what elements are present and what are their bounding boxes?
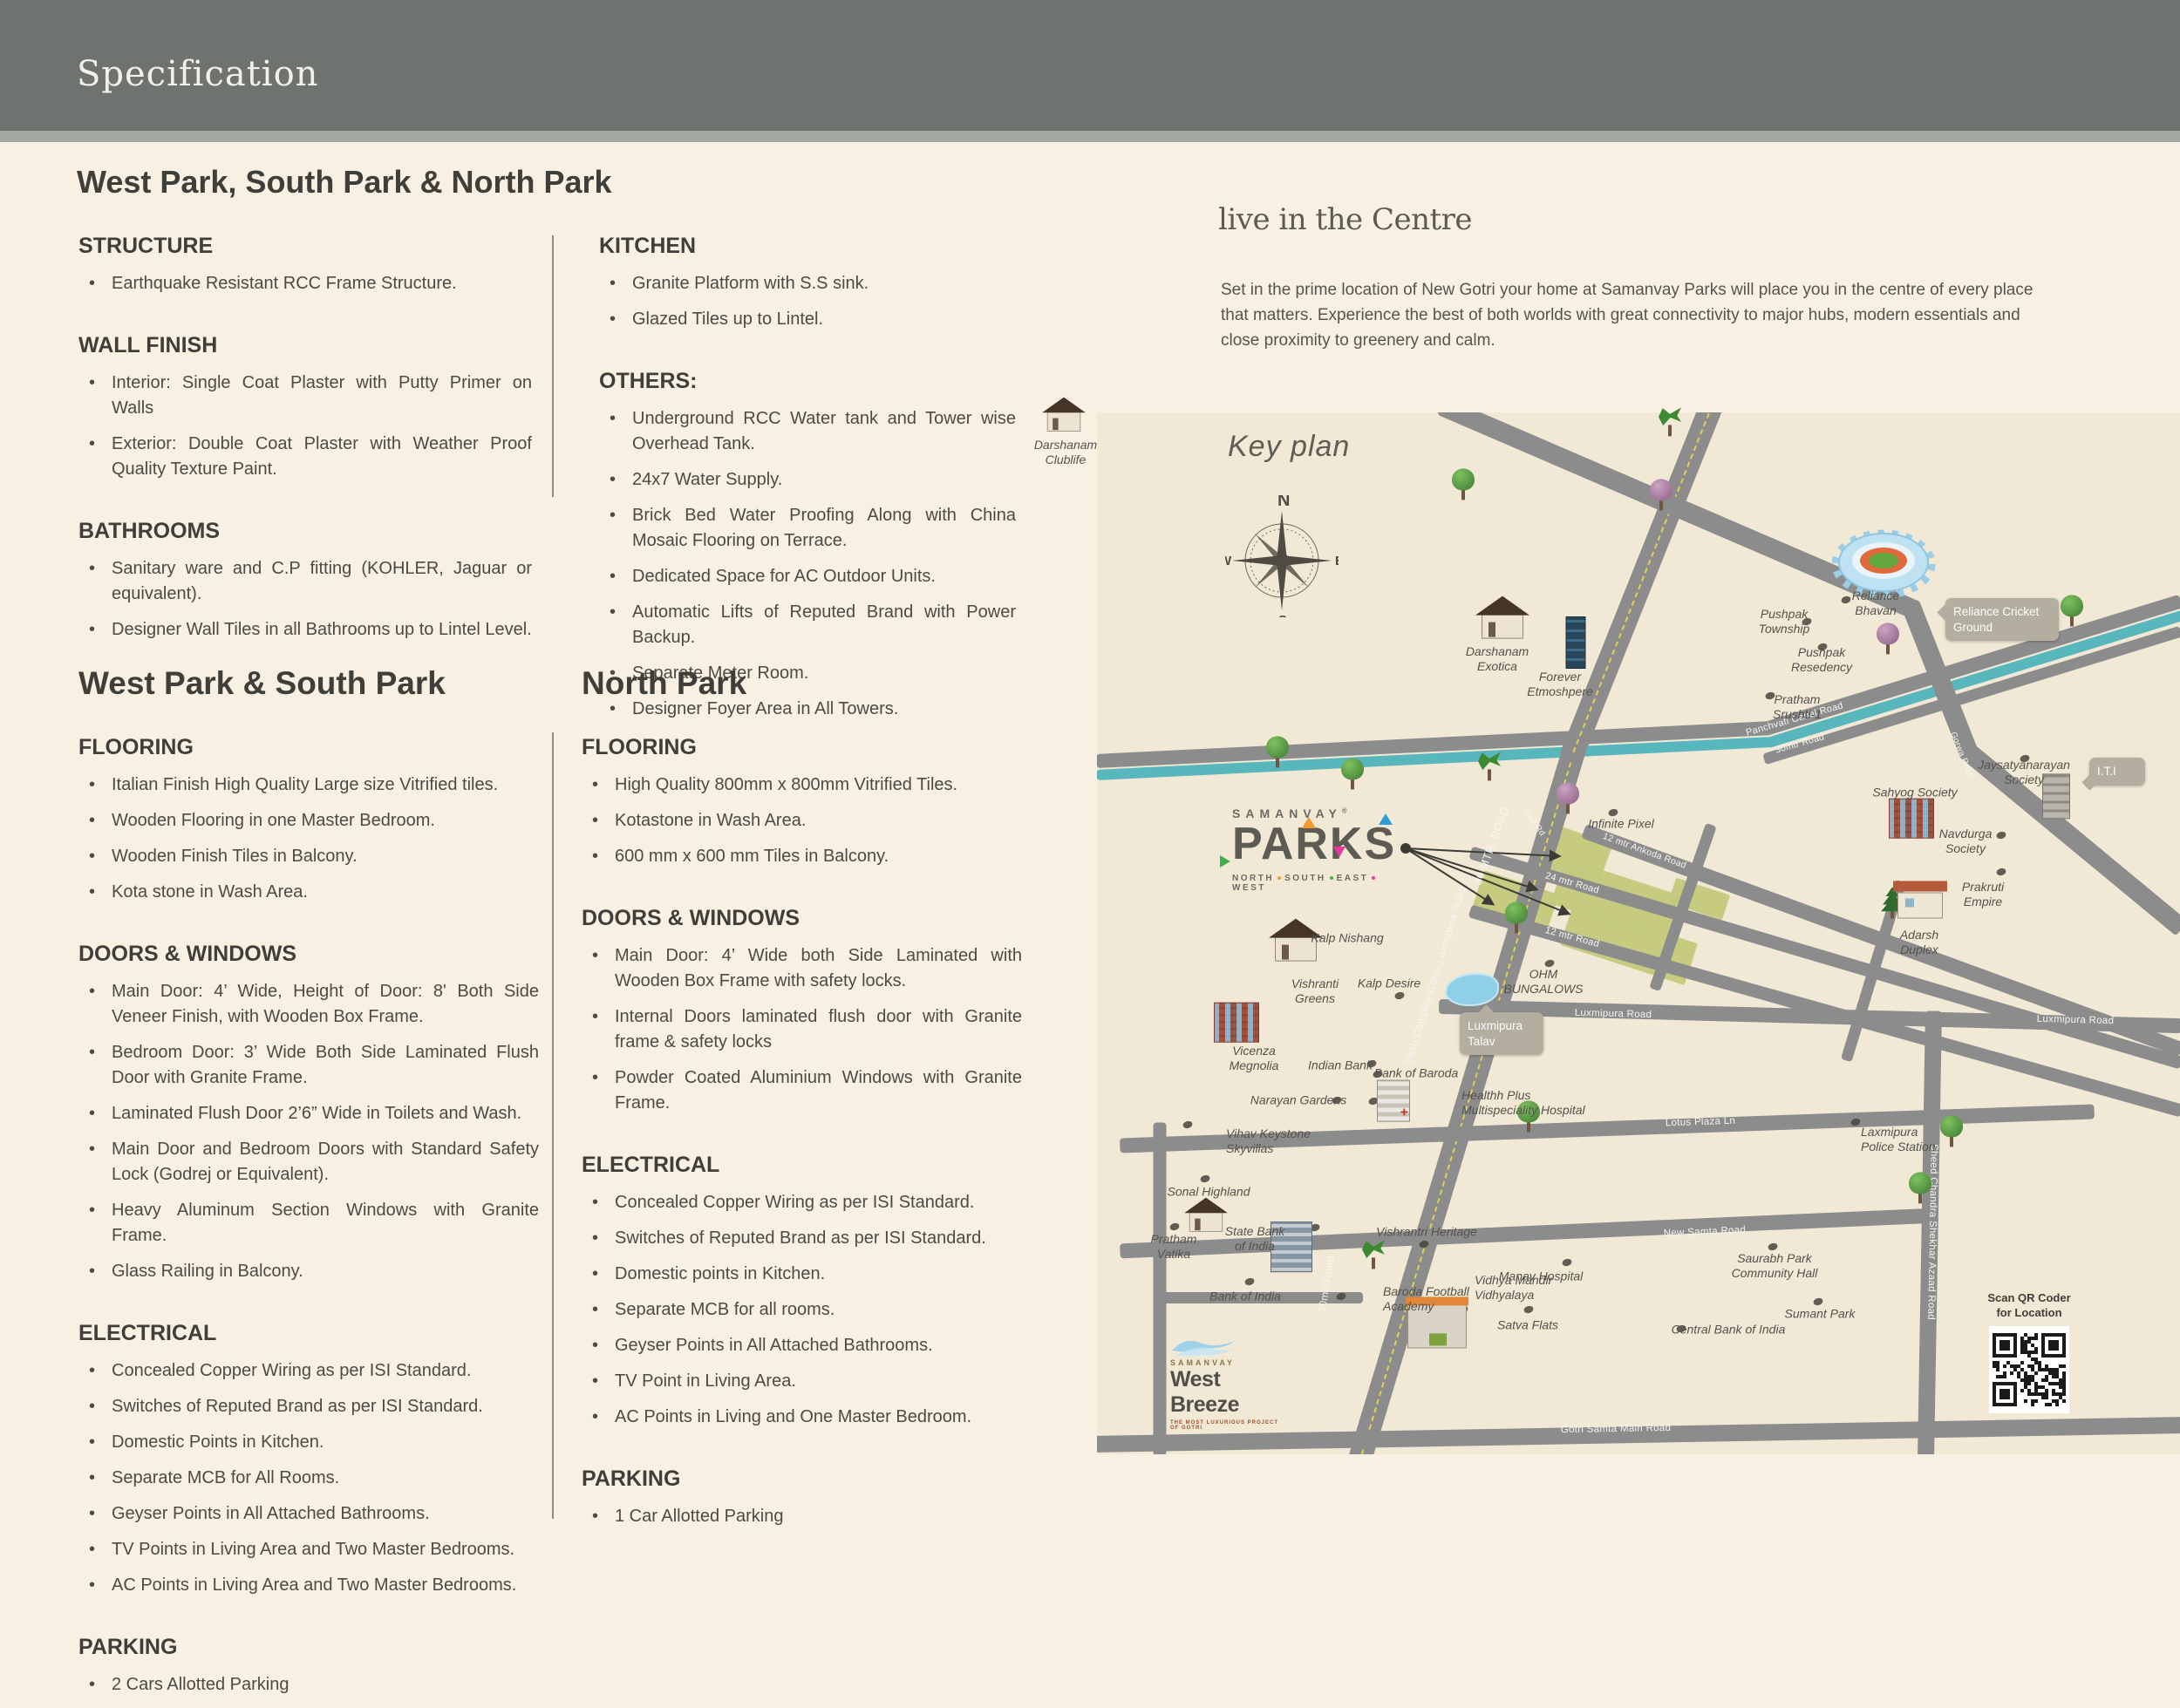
north-park-title: North Park (582, 665, 1022, 702)
road-label: Luxmipura Road (1575, 1008, 1652, 1020)
place-label: Prakruti Empire (1962, 880, 2004, 909)
green-tree-icon (1505, 902, 1528, 933)
spec-item: Internal Doors laminated flush door with… (582, 1004, 1022, 1055)
west-breeze-brand: SAMANVAY (1170, 1358, 1284, 1367)
spec-item: Concealed Copper Wiring as per ISI Stand… (582, 1190, 1022, 1215)
poi-dot (1562, 1258, 1573, 1268)
spec-item: 24x7 Water Supply. (599, 467, 1016, 493)
place-label: Bank of India (1209, 1290, 1281, 1304)
flats-building-icon (1214, 1003, 1259, 1043)
spec-list: High Quality 800mm x 800mm Vitrified Til… (582, 772, 1022, 869)
spec-item: Granite Platform with S.S sink. (599, 271, 1016, 296)
place-label: Pratham Srushti-1 (1773, 692, 1822, 722)
spec-section-heading: WALL FINISH (78, 333, 532, 358)
poi-dot (1336, 1292, 1347, 1302)
poi-dot (1768, 1242, 1779, 1252)
spec-item: 1 Car Allotted Parking (582, 1504, 1022, 1529)
place-label: Sahyog Society (1872, 786, 1957, 800)
place-label: Vishranti Greens (1291, 976, 1339, 1006)
spec-item: Sanitary ware and C.P fitting (KOHLER, J… (78, 556, 532, 607)
registered-mark: ® (1342, 806, 1352, 814)
spec-section-heading: BATHROOMS (78, 519, 532, 544)
duplex-building-icon (1897, 893, 1943, 919)
poi-dot (1813, 1297, 1824, 1307)
house-building-icon (1189, 1212, 1223, 1231)
logo-triangle-orange (1302, 817, 1316, 828)
green-tree-icon (1341, 758, 1364, 789)
flats-building-icon (1889, 799, 1934, 839)
spec-item: Main Door: 4’ Wide both Side Laminated w… (582, 943, 1022, 994)
samanvay-parks-logo: SAMANVAY® PARKS NORTHSOUTHEASTWEST (1232, 806, 1407, 893)
spec-item: Kota stone in Wash Area. (78, 880, 539, 905)
logo-triangle-blue (1379, 813, 1393, 825)
palm-tree-icon (1362, 1237, 1385, 1269)
spec-item: Switches of Reputed Brand as per ISI Sta… (582, 1226, 1022, 1251)
spec-item: Main Door and Bedroom Doors with Standar… (78, 1137, 539, 1187)
spec-section-heading: ELECTRICAL (78, 1321, 539, 1346)
header-band-strip (0, 131, 2180, 142)
west-south-park-title: West Park & South Park (78, 665, 539, 702)
header-band (0, 0, 2180, 131)
road-label: 30mtr Road (1316, 1255, 1337, 1313)
road-label: Sheed Chandra Shekhar Azaad Road (1925, 1144, 1939, 1320)
spec-item: Kotastone in Wash Area. (582, 808, 1022, 834)
svg-text:N: N (1277, 495, 1290, 510)
place-label: Vihav Keystone Skyvillas (1226, 1126, 1311, 1156)
spec-section-heading: DOORS & WINDOWS (582, 906, 1022, 931)
road-label: Gorwa Road (1948, 731, 1975, 779)
place-label: Vishrantri Heritage (1376, 1225, 1477, 1240)
spec-list: Concealed Copper Wiring as per ISI Stand… (78, 1358, 539, 1598)
spec-item: Heavy Aluminum Section Windows with Gran… (78, 1198, 539, 1249)
callout-line: Luxmipura (1468, 1018, 1536, 1034)
tagline-dot (1277, 876, 1281, 880)
place-label: Darshanam Clublife (1034, 438, 1097, 467)
west-breeze-logo: SAMANVAY West Breeze THE MOST LUXURIOUS … (1170, 1335, 1284, 1431)
green-tree-icon (1909, 1172, 1931, 1203)
road-label: 24 mtr Road (1544, 870, 1601, 895)
logo-triangle-green (1220, 855, 1230, 868)
spec-item: AC Points in Living and One Master Bedro… (582, 1405, 1022, 1430)
place-label: Saurabh Park Community Hall (1732, 1251, 1818, 1281)
place-label: Bank of Baroda (1374, 1066, 1459, 1081)
road-label: Yash Complex Gotri- Laxmipura Road (1402, 885, 1468, 1065)
road-label: Luxmipura Road (2037, 1014, 2115, 1026)
spec-section-heading: PARKING (582, 1466, 1022, 1492)
spec-item: Exterior: Double Coat Plaster with Weath… (78, 432, 532, 482)
spec-item: Switches of Reputed Brand as per ISI Sta… (78, 1394, 539, 1419)
tree-canopy (1659, 405, 1681, 426)
spec-item: Separate MCB for all rooms. (582, 1297, 1022, 1323)
west-breeze-tagline: THE MOST LUXURIOUS PROJECT OF GOTRI (1170, 1420, 1284, 1431)
poi-dot (1394, 991, 1406, 1001)
spec-item: 2 Cars Allotted Parking (78, 1672, 539, 1698)
logo-triangle-pink (1333, 847, 1345, 857)
place-label: Forever Etmoshpere (1527, 670, 1592, 699)
spec-item: 600 mm x 600 mm Tiles in Balcony. (582, 844, 1022, 869)
spec-section-heading: FLOORING (78, 735, 539, 760)
callout-line: Talav (1468, 1034, 1536, 1050)
spec-section-heading: PARKING (78, 1635, 539, 1660)
spec-list: Interior: Single Coat Plaster with Putty… (78, 371, 532, 482)
place-label: Navdurga Society (1939, 827, 1993, 856)
callout-tail (2081, 774, 2097, 790)
qr-code (1989, 1326, 2069, 1413)
palm-tree-icon (1478, 749, 1501, 780)
logo-tagline-word: EAST (1337, 874, 1369, 883)
spec-item: Dedicated Space for AC Outdoor Units. (599, 564, 1016, 589)
road-label: 30 MTR. ROAD (1471, 805, 1511, 887)
tree-canopy (1557, 782, 1579, 804)
road-label: Lotus Plaza Ln (1666, 1116, 1736, 1129)
tree-canopy (1877, 623, 1899, 644)
hospital-building-icon (1377, 1080, 1410, 1122)
spec-item: Designer Wall Tiles in all Bathrooms up … (78, 617, 532, 643)
spec-item: Wooden Finish Tiles in Balcony. (78, 844, 539, 869)
spec-item: Earthquake Resistant RCC Frame Structure… (78, 271, 532, 296)
column-divider-bottom (552, 732, 554, 1519)
place-label: Sumant Park (1785, 1307, 1856, 1322)
tower-building-icon (1566, 616, 1586, 669)
spec-item: Domestic points in Kitchen. (582, 1262, 1022, 1287)
logo-name: PARKS (1232, 820, 1407, 868)
green-tree-icon (1452, 468, 1475, 500)
compass-icon: N E S W (1225, 495, 1339, 617)
north-park-sections: FLOORINGHigh Quality 800mm x 800mm Vitri… (582, 735, 1022, 1529)
keyplan-title: Key plan (1228, 430, 1350, 464)
callout-tail (1937, 604, 1952, 620)
callout-line: Ground (1953, 620, 2051, 636)
column-divider-top (552, 235, 554, 497)
spec-item: Glass Railing in Balcony. (78, 1259, 539, 1284)
tree-canopy (1909, 1172, 1931, 1194)
spec-section-heading: FLOORING (582, 735, 1022, 760)
spec-list: Granite Platform with S.S sink.Glazed Ti… (599, 271, 1016, 332)
poi-dot (1850, 1118, 1862, 1127)
spec-item: Geyser Points in All Attached Bathrooms. (582, 1333, 1022, 1358)
purple-tree-icon (1557, 782, 1579, 813)
svg-text:E: E (1335, 554, 1339, 568)
poi-dot (1996, 831, 2007, 840)
place-label: Central Bank of India (1672, 1323, 1786, 1337)
road-label: 30mtr Road (1775, 732, 1826, 755)
spec-item: Concealed Copper Wiring as per ISI Stand… (78, 1358, 539, 1384)
tree-canopy (1478, 749, 1501, 771)
house-building-icon (1482, 615, 1523, 639)
west-breeze-wave-icon (1170, 1335, 1238, 1359)
tagline-dot (1330, 876, 1333, 880)
logo-tagline: NORTHSOUTHEASTWEST (1232, 874, 1407, 893)
place-label: Sonal Highland (1168, 1185, 1250, 1200)
tree-canopy (1452, 468, 1475, 490)
spec-section-heading: DOORS & WINDOWS (78, 942, 539, 967)
road-label: New Samta Road (1664, 1225, 1747, 1239)
callout-line: I.T.I (2097, 764, 2137, 779)
spec-section-heading: OTHERS: (599, 369, 1016, 394)
spec-list: 2 Cars Allotted Parking (78, 1672, 539, 1698)
spec-section-heading: ELECTRICAL (582, 1153, 1022, 1178)
spec-item: Separate MCB for All Rooms. (78, 1466, 539, 1491)
poi-dot (1419, 1240, 1430, 1249)
tree-canopy (1362, 1237, 1385, 1259)
poi-dot (1996, 868, 2007, 877)
tree-canopy (1505, 902, 1528, 923)
place-label: Kalp Nishang (1311, 931, 1383, 946)
spec-section-heading: STRUCTURE (78, 234, 532, 259)
spec-list: Earthquake Resistant RCC Frame Structure… (78, 271, 532, 296)
map-features-layer: Key plan N E S W (1097, 412, 2180, 1454)
west-breeze-name: West Breeze (1170, 1367, 1284, 1418)
spec-item: High Quality 800mm x 800mm Vitrified Til… (582, 772, 1022, 798)
poi-dot (1841, 595, 1852, 605)
road-label: 12 mtr Ankoda Road (1601, 831, 1687, 871)
place-label: Kalp Desire (1358, 976, 1420, 991)
spec-item: Domestic Points in Kitchen. (78, 1430, 539, 1455)
place-label: Pushpak Resedency (1791, 645, 1852, 675)
combined-specs-title: West Park, South Park & North Park (77, 164, 612, 201)
spec-item: Geyser Points in All Attached Bathrooms. (78, 1501, 539, 1527)
tree-canopy (1266, 736, 1289, 758)
spec-list: Sanitary ware and C.P fitting (KOHLER, J… (78, 556, 532, 643)
combined-col-left: STRUCTUREEarthquake Resistant RCC Frame … (78, 234, 532, 653)
map-callout: Reliance CricketGround (1945, 598, 2059, 641)
place-label: Narayan Gardens (1250, 1093, 1347, 1108)
road-label: Club Rd (1521, 806, 1547, 838)
purple-tree-icon (1650, 479, 1672, 510)
callout-line: Reliance Cricket (1953, 604, 2051, 620)
svg-text:S: S (1278, 613, 1287, 617)
map-callout: I.T.I (2089, 758, 2145, 786)
keyplan-panel: Key plan N E S W (1097, 412, 2180, 1454)
tree-trunk (1668, 425, 1672, 436)
spec-item: Laminated Flush Door 2’6” Wide in Toilet… (78, 1101, 539, 1126)
place-label: State Bank of India (1225, 1224, 1285, 1254)
qr-caption: Scan QR Coder for Location (1986, 1291, 2073, 1321)
spec-item: TV Point in Living Area. (582, 1369, 1022, 1394)
spec-item: Glazed Tiles up to Lintel. (599, 307, 1016, 332)
poi-dot (1244, 1277, 1256, 1287)
tree-canopy (1341, 758, 1364, 779)
spec-item: AC Points in Living Area and Two Master … (78, 1573, 539, 1598)
place-label: Reliance Bhavan (1852, 589, 1899, 618)
tree-canopy (2061, 595, 2083, 616)
spec-item: Powder Coated Aluminium Windows with Gra… (582, 1065, 1022, 1116)
combined-col-right: KITCHENGranite Platform with S.S sink.Gl… (599, 234, 1016, 732)
intro-heading: live in the Centre (1218, 202, 1472, 237)
place-label: Laxmipura Police Station (1861, 1125, 1936, 1154)
svg-text:W: W (1225, 554, 1232, 568)
tree-canopy (1940, 1115, 1963, 1137)
spec-item: Italian Finish High Quality Large size V… (78, 772, 539, 798)
place-label: Infinite Pixel (1588, 817, 1653, 832)
place-label: OHM BUNGALOWS (1503, 967, 1583, 997)
place-label: Darshanam Exotica (1466, 644, 1529, 674)
place-label: Pratham Vatika (1151, 1232, 1197, 1262)
place-label: Satva Flats (1497, 1318, 1558, 1333)
spec-item: Interior: Single Coat Plaster with Putty… (78, 371, 532, 421)
spec-item: TV Points in Living Area and Two Master … (78, 1537, 539, 1562)
place-label: Baroda Football Academy (1383, 1284, 1469, 1314)
spec-item: Brick Bed Water Proofing Along with Chin… (599, 503, 1016, 554)
spec-item: Automatic Lifts of Reputed Brand with Po… (599, 600, 1016, 650)
tree-trunk (1372, 1257, 1375, 1269)
place-label: Healthh Plus Multispeciality Hospital (1461, 1088, 1585, 1118)
green-tree-icon (1266, 736, 1289, 767)
place-label: Pushpak Township (1759, 607, 1810, 636)
spec-list: Main Door: 4’ Wide both Side Laminated w… (582, 943, 1022, 1116)
green-tree-icon (1940, 1115, 1963, 1147)
west-south-park-sections: FLOORINGItalian Finish High Quality Larg… (78, 735, 539, 1698)
road-label: Gotri Samta Main Road (1561, 1423, 1672, 1435)
spec-item: Wooden Flooring in one Master Bedroom. (78, 808, 539, 834)
place-label: Adarsh Duplex (1900, 928, 1938, 957)
road-label: 12 mtr Road (1544, 925, 1601, 949)
tagline-dot (1372, 876, 1375, 880)
poi-dot (1200, 1174, 1211, 1184)
spec-item: Main Door: 4’ Wide, Height of Door: 8' B… (78, 979, 539, 1030)
spec-item: Underground RCC Water tank and Tower wis… (599, 406, 1016, 457)
poi-dot (1523, 1305, 1535, 1315)
green-tree-icon (2061, 595, 2083, 626)
tree-canopy (1650, 479, 1672, 500)
logo-tagline-word: WEST (1232, 883, 1266, 893)
poi-dot (1182, 1120, 1194, 1130)
brochure-page: { "header": { "title": "Specification" }… (0, 0, 2180, 1575)
place-label: Vicenza Megnolia (1230, 1044, 1279, 1073)
north-park-block: North Park FLOORINGHigh Quality 800mm x … (582, 665, 1022, 1540)
qr-block: Scan QR Coder for Location (1986, 1291, 2073, 1413)
spec-list: 1 Car Allotted Parking (582, 1504, 1022, 1529)
west-south-park-block: West Park & South Park FLOORINGItalian F… (78, 665, 539, 1708)
spec-list: Concealed Copper Wiring as per ISI Stand… (582, 1190, 1022, 1430)
logo-tagline-word: SOUTH (1284, 874, 1326, 883)
place-label: Manav Hospital (1499, 1269, 1584, 1284)
tree-trunk (1488, 769, 1491, 780)
spec-list: Main Door: 4’ Wide, Height of Door: 8' B… (78, 979, 539, 1284)
poi-dot (1169, 1222, 1181, 1232)
spec-list: Italian Finish High Quality Large size V… (78, 772, 539, 905)
talav-pond-icon (1445, 973, 1499, 1006)
spec-item: Bedroom Door: 3’ Wide Both Side Laminate… (78, 1040, 539, 1091)
place-label: Jaysatyanarayan Society (1978, 758, 2070, 787)
place-label: Indian Bank (1308, 1058, 1373, 1073)
logo-tagline-word: NORTH (1232, 874, 1274, 883)
spec-section-heading: KITCHEN (599, 234, 1016, 259)
page-title: Specification (77, 54, 318, 94)
map-callout: LuxmipuraTalav (1460, 1012, 1543, 1055)
purple-tree-icon (1877, 623, 1899, 654)
house-building-icon (1047, 412, 1080, 431)
intro-paragraph: Set in the prime location of New Gotri y… (1221, 277, 2047, 353)
palm-tree-icon (1659, 405, 1681, 436)
